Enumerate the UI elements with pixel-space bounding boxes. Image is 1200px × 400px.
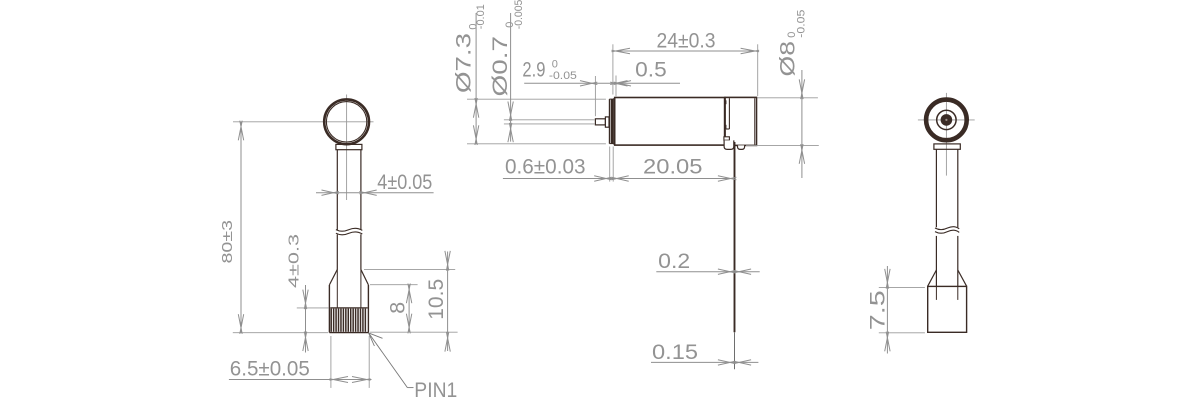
svg-text:-0.05: -0.05 xyxy=(549,70,577,82)
svg-text:10.5: 10.5 xyxy=(424,279,448,320)
svg-text:8: 8 xyxy=(386,302,410,314)
svg-text:24±0.3: 24±0.3 xyxy=(657,29,716,53)
svg-text:2.9: 2.9 xyxy=(522,57,545,81)
svg-text:Ø7.3: Ø7.3 xyxy=(451,33,475,93)
svg-text:0.2: 0.2 xyxy=(658,249,690,273)
svg-text:-0.01: -0.01 xyxy=(475,4,487,29)
svg-text:4±0.05: 4±0.05 xyxy=(377,170,432,194)
svg-text:20.05: 20.05 xyxy=(643,155,703,179)
svg-text:7.5: 7.5 xyxy=(865,290,889,330)
svg-text:Ø8: Ø8 xyxy=(776,41,800,77)
svg-text:4±0.3: 4±0.3 xyxy=(287,234,303,288)
svg-text:80±3: 80±3 xyxy=(220,220,236,264)
svg-text:0.15: 0.15 xyxy=(652,340,698,364)
svg-text:0.6±0.03: 0.6±0.03 xyxy=(505,155,586,179)
svg-text:Ø0.7: Ø0.7 xyxy=(488,36,512,97)
svg-text:PIN1: PIN1 xyxy=(414,378,457,400)
svg-text:6.5±0.05: 6.5±0.05 xyxy=(230,356,310,380)
svg-text:0: 0 xyxy=(552,58,558,70)
svg-text:-0.05: -0.05 xyxy=(795,10,807,38)
svg-text:0.5: 0.5 xyxy=(635,58,667,82)
svg-text:-0.005: -0.005 xyxy=(513,0,525,29)
